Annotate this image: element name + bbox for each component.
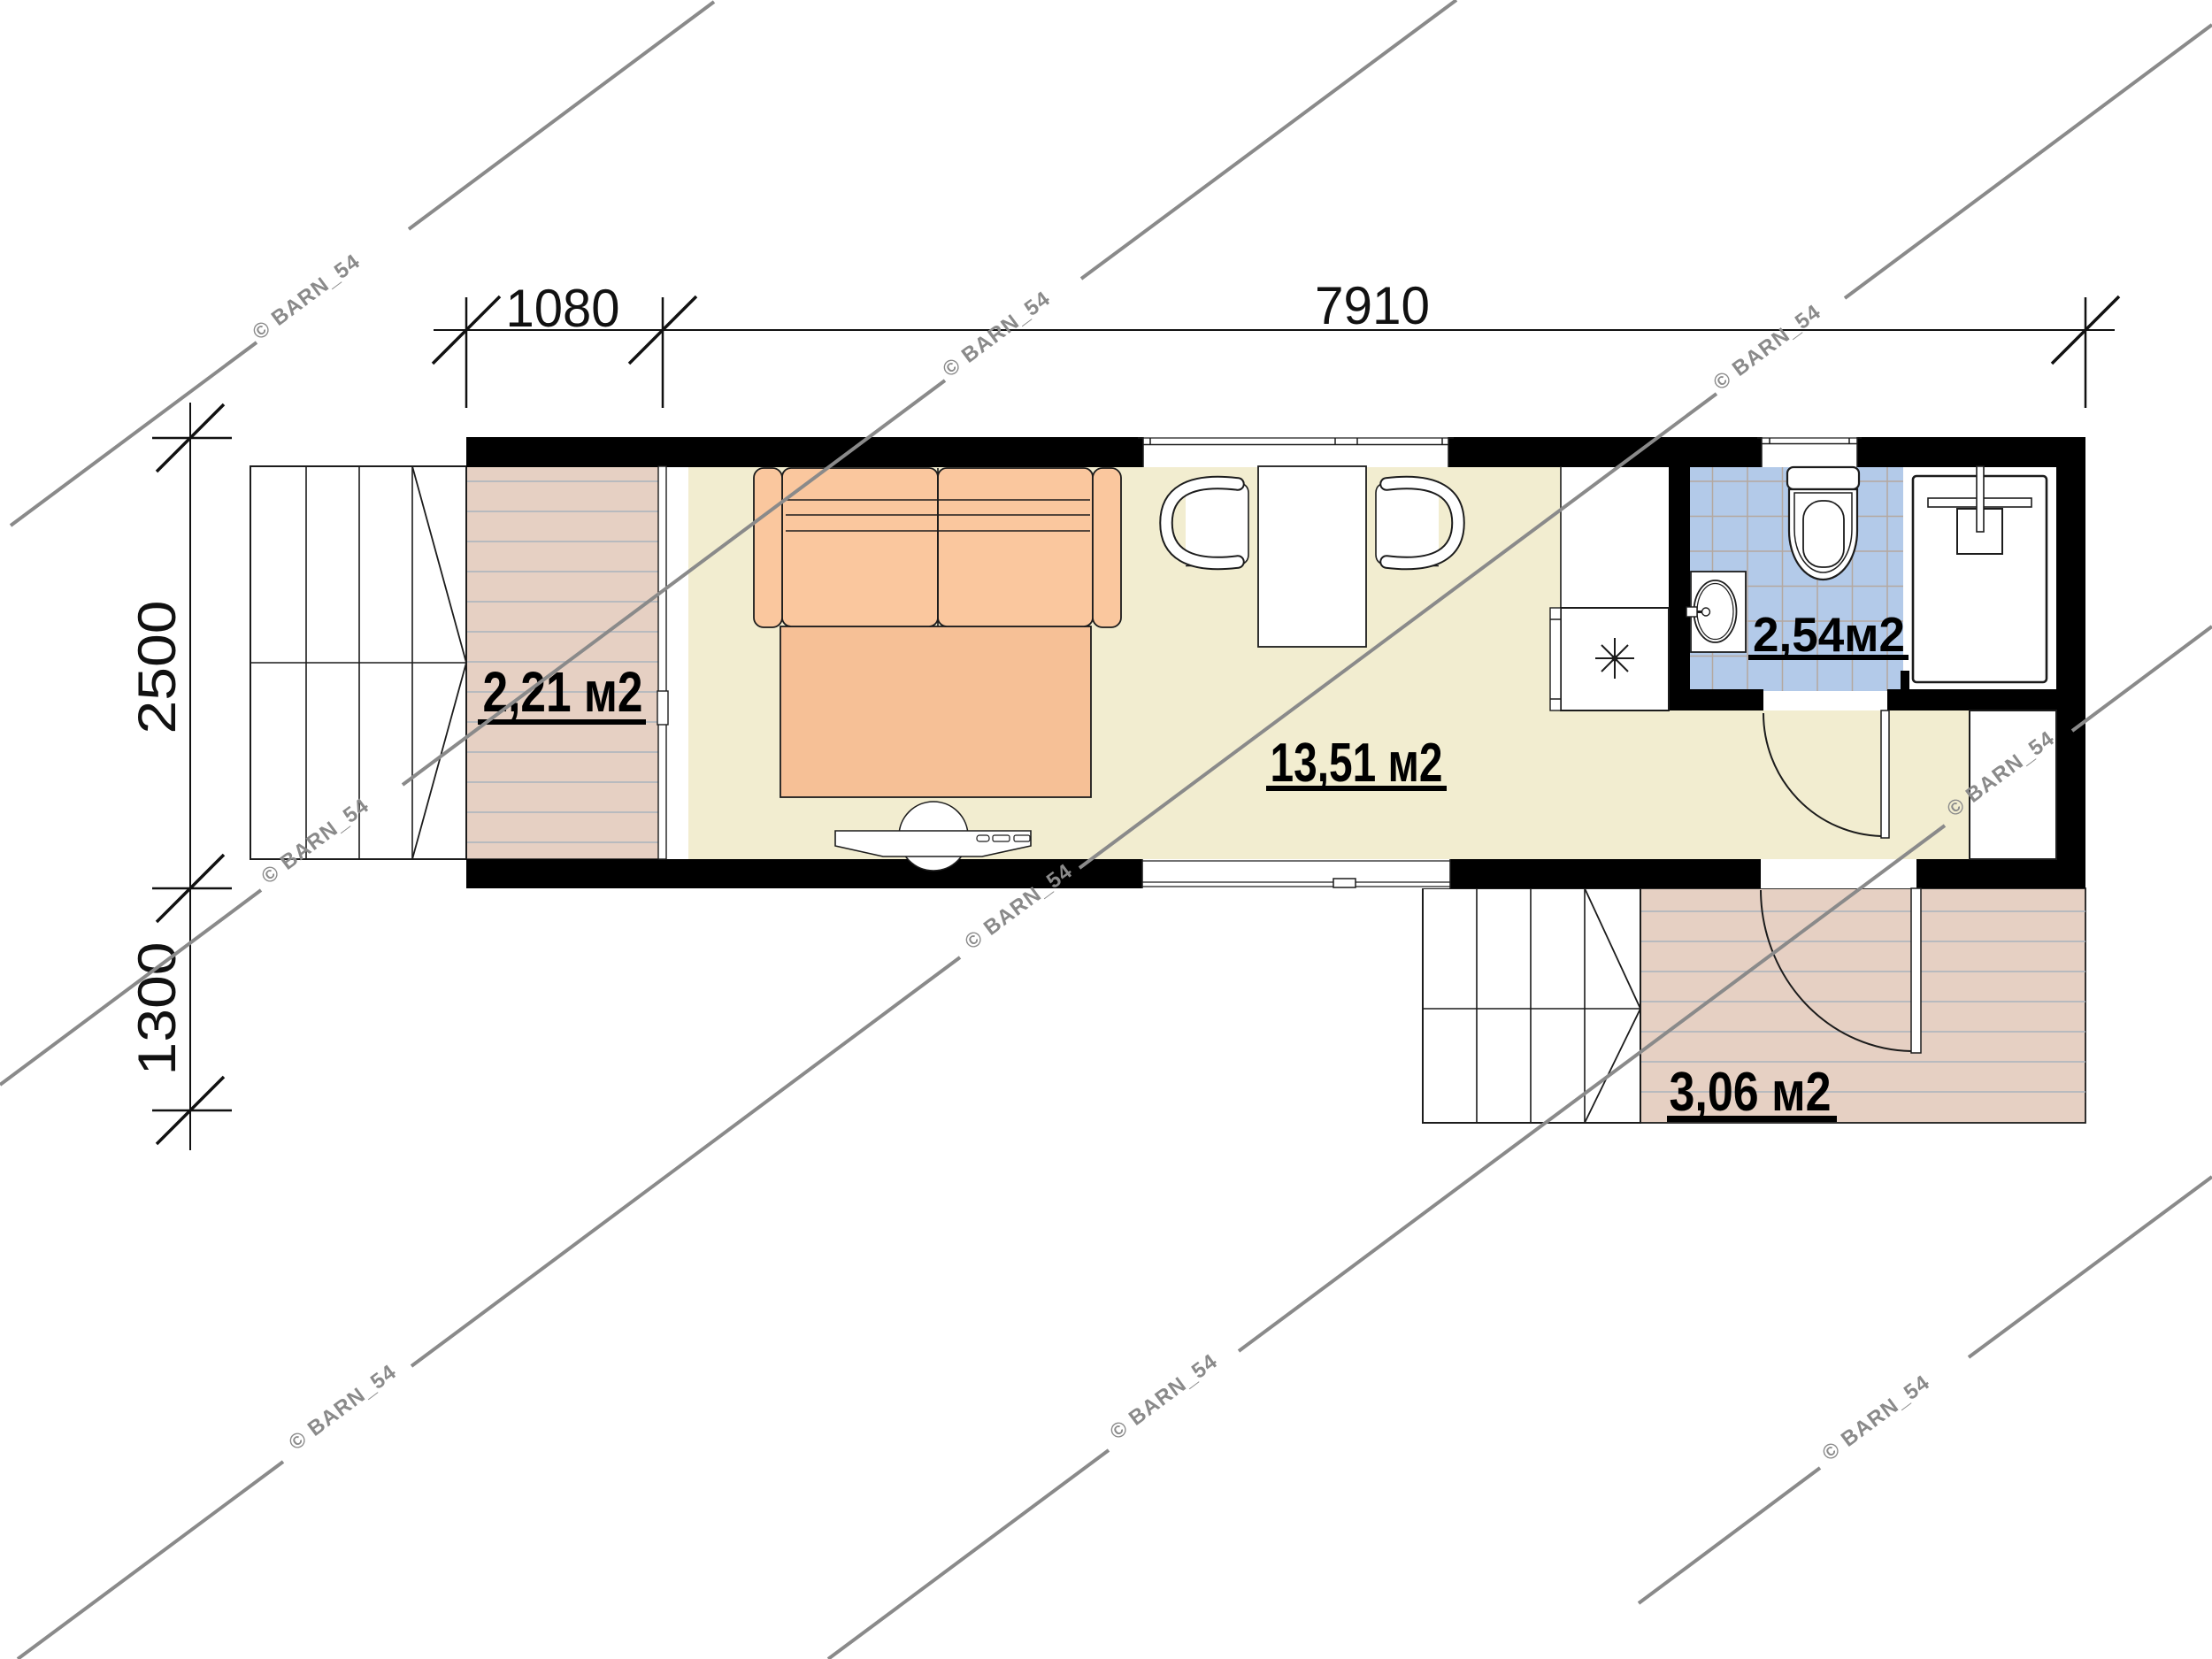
svg-text:13,51 м2: 13,51 м2 [1271,733,1443,794]
svg-text:7910: 7910 [1315,276,1430,335]
svg-text:© BARN_54: © BARN_54 [284,1360,401,1455]
svg-text:© BARN_54: © BARN_54 [1105,1349,1222,1445]
svg-text:© BARN_54: © BARN_54 [248,250,365,345]
svg-text:2,54м2: 2,54м2 [1753,607,1905,662]
svg-text:1080: 1080 [506,279,620,338]
svg-text:3,06 м2: 3,06 м2 [1670,1062,1832,1123]
svg-text:© BARN_54: © BARN_54 [1817,1371,1934,1466]
svg-text:1300: 1300 [127,942,187,1076]
svg-text:2500: 2500 [127,601,187,734]
svg-text:© BARN_54: © BARN_54 [1709,300,1825,396]
svg-text:2,21 м2: 2,21 м2 [483,660,643,724]
svg-text:© BARN_54: © BARN_54 [938,287,1055,382]
